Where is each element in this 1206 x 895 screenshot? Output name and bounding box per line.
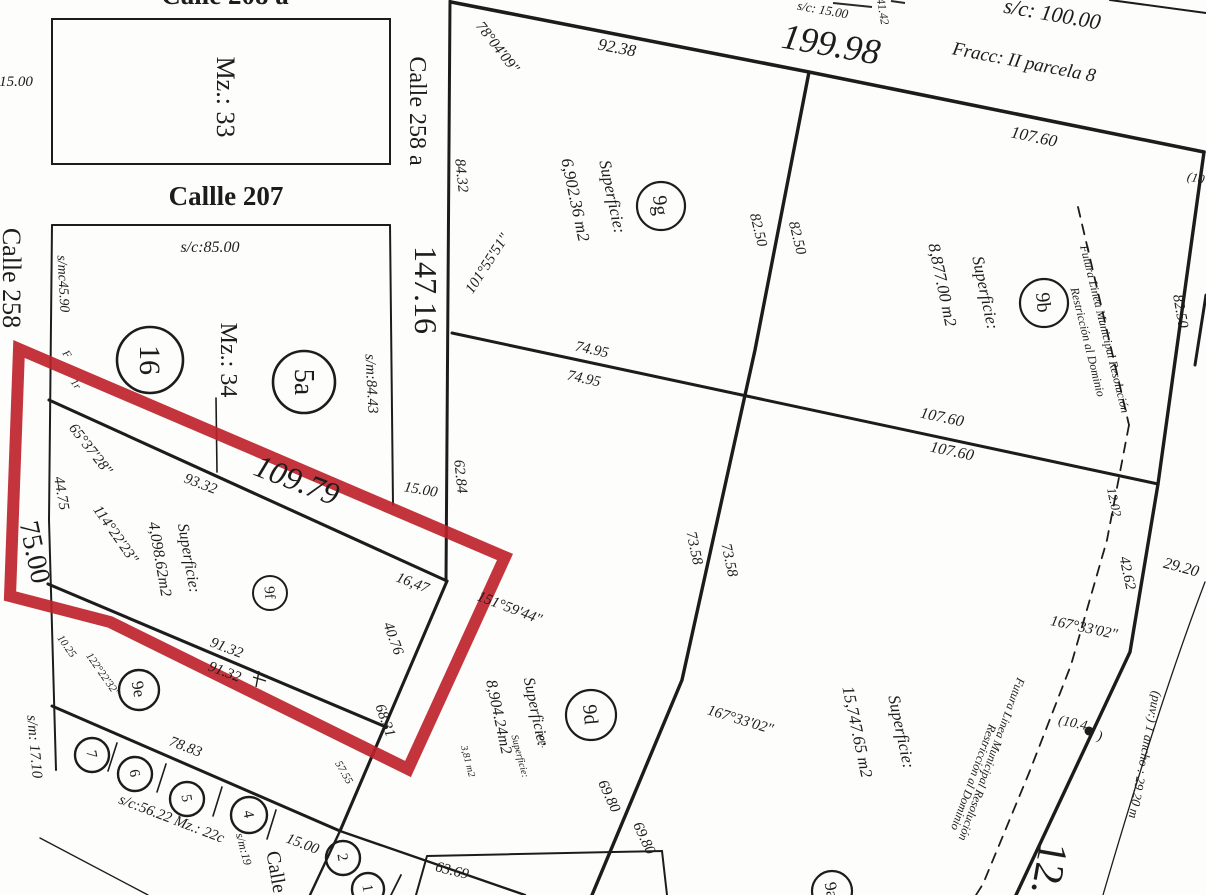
svg-text:Mz.: 33: Mz.: 33: [211, 57, 240, 138]
svg-text:s/c:85.00: s/c:85.00: [180, 239, 239, 256]
svg-text:9b: 9b: [1031, 292, 1055, 314]
svg-text:Callle 207: Callle 207: [169, 181, 284, 211]
svg-text:147.16: 147.16: [408, 246, 444, 334]
svg-text:Calle 258: Calle 258: [0, 228, 26, 328]
svg-text:Calle 258 a: Calle 258 a: [404, 56, 430, 166]
svg-text:9e: 9e: [128, 679, 149, 698]
svg-text:5a: 5a: [288, 369, 319, 396]
svg-text:12.: 12.: [1022, 838, 1076, 895]
svg-text:15.00: 15.00: [0, 74, 33, 90]
svg-text:9d: 9d: [578, 704, 602, 726]
svg-text:s/mc45.90: s/mc45.90: [54, 255, 72, 313]
svg-text:9f: 9f: [260, 586, 277, 600]
svg-text:16: 16: [133, 345, 166, 375]
svg-text:9g: 9g: [648, 195, 672, 217]
svg-text:Mz.: 34: Mz.: 34: [215, 323, 241, 398]
svg-text:s/m:84.43: s/m:84.43: [361, 354, 380, 414]
svg-text:9a: 9a: [821, 880, 843, 895]
svg-text:Calle 208 a: Calle 208 a: [161, 0, 289, 10]
